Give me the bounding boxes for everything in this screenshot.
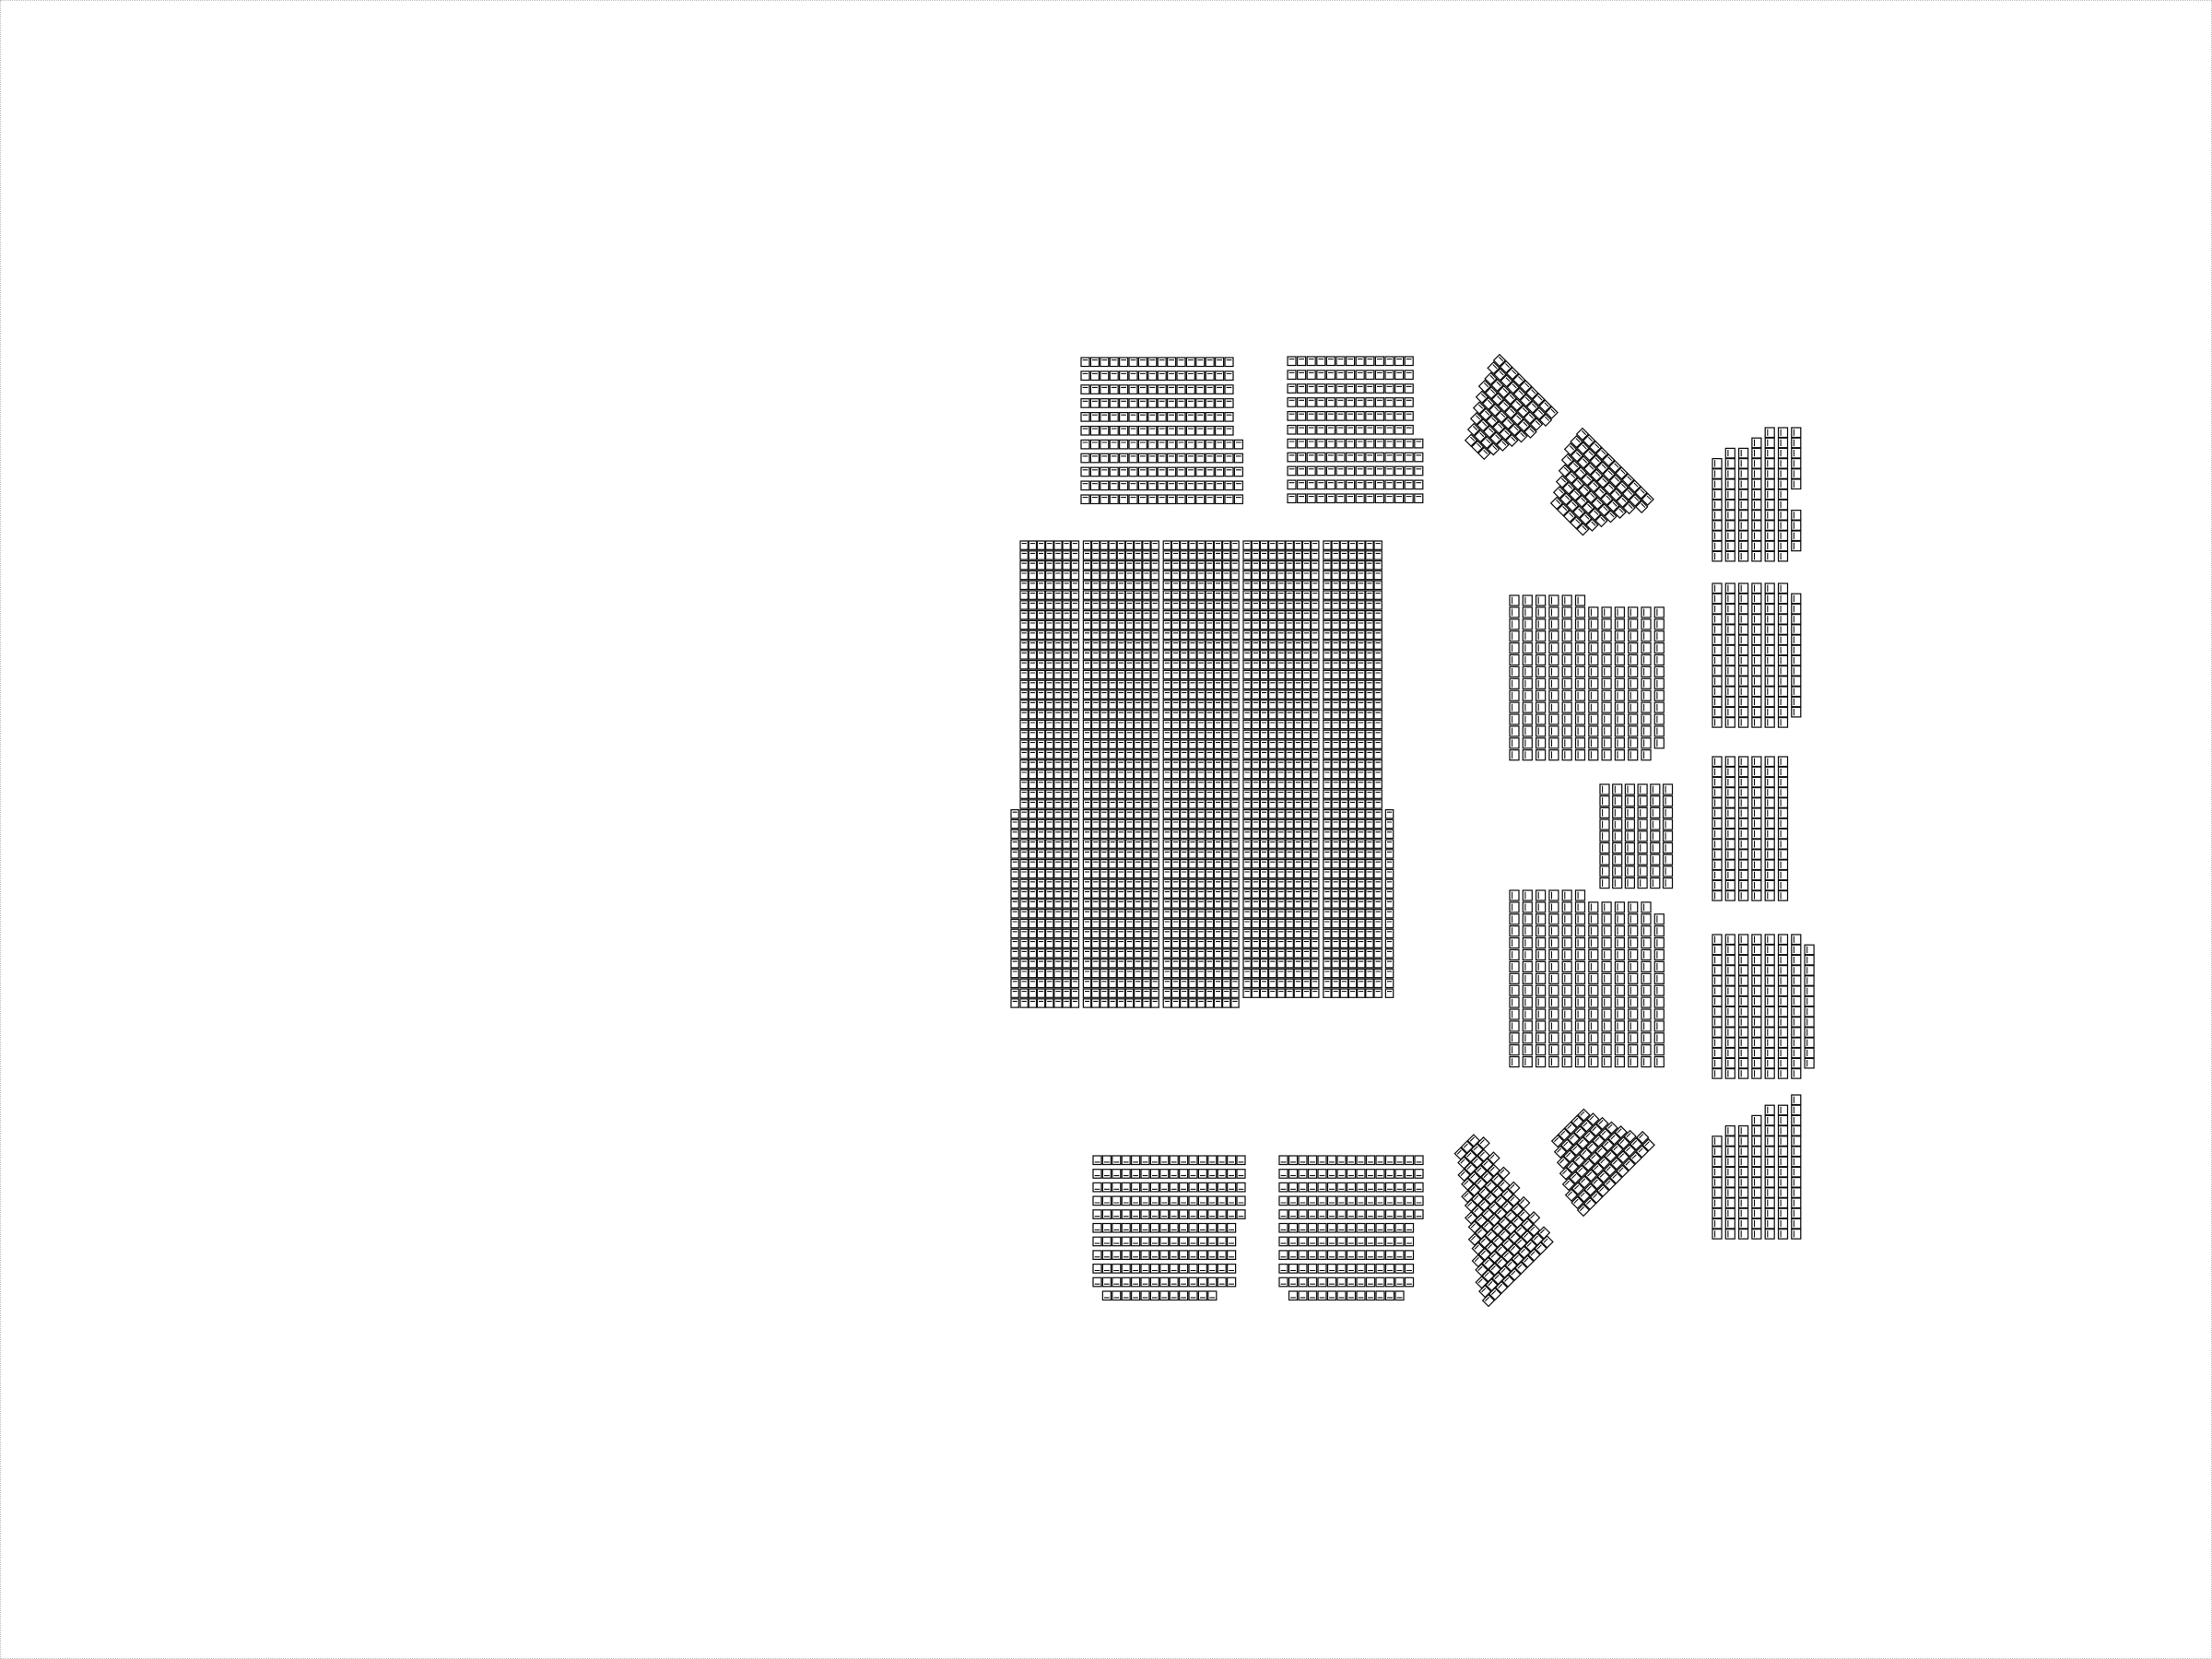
seat[interactable] bbox=[1523, 750, 1532, 760]
seat[interactable] bbox=[1110, 440, 1118, 449]
seat[interactable] bbox=[1712, 500, 1722, 510]
seat[interactable] bbox=[1332, 551, 1339, 559]
seat[interactable] bbox=[1170, 1265, 1178, 1274]
seat[interactable] bbox=[1549, 595, 1559, 606]
seat[interactable] bbox=[1792, 459, 1801, 469]
seat[interactable] bbox=[1549, 1057, 1559, 1067]
seat[interactable] bbox=[1277, 581, 1285, 589]
east-stand-lower-block[interactable] bbox=[1510, 890, 1664, 1067]
seat[interactable] bbox=[1294, 969, 1301, 977]
seat[interactable] bbox=[1046, 680, 1053, 688]
seat[interactable] bbox=[1752, 1028, 1761, 1038]
seat[interactable] bbox=[1206, 690, 1213, 699]
seat[interactable] bbox=[1163, 711, 1171, 719]
seat[interactable] bbox=[1063, 700, 1070, 709]
seat[interactable] bbox=[1358, 879, 1365, 888]
seat[interactable] bbox=[1536, 666, 1546, 677]
seat[interactable] bbox=[1269, 929, 1277, 937]
seat[interactable] bbox=[1302, 850, 1310, 858]
seat[interactable] bbox=[1243, 551, 1251, 559]
seat[interactable] bbox=[1189, 1265, 1197, 1274]
seat[interactable] bbox=[1289, 1156, 1298, 1165]
seat[interactable] bbox=[1576, 702, 1585, 712]
seat[interactable] bbox=[1752, 666, 1761, 677]
seat[interactable] bbox=[1340, 790, 1347, 798]
seat[interactable] bbox=[1092, 551, 1100, 559]
seat[interactable] bbox=[1231, 999, 1239, 1007]
seat[interactable] bbox=[1054, 850, 1062, 858]
seat[interactable] bbox=[1020, 750, 1028, 759]
seat[interactable] bbox=[1223, 939, 1230, 947]
seat[interactable] bbox=[1312, 611, 1319, 619]
seat[interactable] bbox=[1367, 1277, 1375, 1287]
seat[interactable] bbox=[1189, 910, 1196, 918]
seat[interactable] bbox=[1100, 440, 1109, 449]
seat[interactable] bbox=[1712, 986, 1722, 996]
seat[interactable] bbox=[1231, 541, 1239, 549]
seat[interactable] bbox=[1779, 840, 1788, 850]
seat[interactable] bbox=[1223, 850, 1230, 858]
seat[interactable] bbox=[1046, 601, 1053, 609]
seat[interactable] bbox=[1385, 384, 1394, 394]
seat[interactable] bbox=[1286, 760, 1293, 769]
seat[interactable] bbox=[1299, 1224, 1307, 1233]
seat[interactable] bbox=[1279, 1224, 1288, 1233]
seat[interactable] bbox=[1029, 700, 1036, 709]
seat[interactable] bbox=[1277, 939, 1285, 947]
seat[interactable] bbox=[1615, 902, 1624, 912]
seat[interactable] bbox=[1092, 919, 1100, 927]
seat[interactable] bbox=[1629, 973, 1638, 983]
seat[interactable] bbox=[1109, 979, 1116, 987]
seat[interactable] bbox=[1348, 979, 1356, 987]
seat[interactable] bbox=[1739, 541, 1748, 551]
seat[interactable] bbox=[1374, 819, 1382, 828]
seat[interactable] bbox=[1197, 591, 1205, 599]
seat[interactable] bbox=[1324, 750, 1331, 759]
seat[interactable] bbox=[1214, 919, 1221, 927]
seat[interactable] bbox=[1141, 1224, 1149, 1233]
seat[interactable] bbox=[1385, 929, 1393, 937]
seat[interactable] bbox=[1243, 620, 1251, 629]
seat[interactable] bbox=[1615, 973, 1624, 983]
seat[interactable] bbox=[1189, 720, 1196, 728]
seat[interactable] bbox=[1011, 810, 1018, 818]
seat[interactable] bbox=[1792, 1188, 1801, 1198]
seat[interactable] bbox=[1318, 1210, 1326, 1219]
seat[interactable] bbox=[1523, 702, 1532, 712]
seat[interactable] bbox=[1376, 1265, 1384, 1274]
seat[interactable] bbox=[1181, 571, 1188, 579]
south-stand-left-block[interactable] bbox=[1093, 1156, 1245, 1300]
seat[interactable] bbox=[1328, 1224, 1336, 1233]
seat[interactable] bbox=[1214, 581, 1221, 589]
seat[interactable] bbox=[1092, 770, 1100, 778]
seat[interactable] bbox=[1225, 358, 1233, 367]
seat[interactable] bbox=[1029, 611, 1036, 619]
seat[interactable] bbox=[1739, 511, 1748, 521]
seat[interactable] bbox=[1312, 760, 1319, 769]
seat[interactable] bbox=[1117, 999, 1124, 1007]
seat[interactable] bbox=[1252, 790, 1259, 798]
seat[interactable] bbox=[1629, 643, 1638, 653]
seat[interactable] bbox=[1214, 760, 1221, 769]
seat[interactable] bbox=[1117, 661, 1124, 669]
seat[interactable] bbox=[1286, 641, 1293, 649]
seat[interactable] bbox=[1523, 926, 1532, 936]
seat[interactable] bbox=[1664, 796, 1673, 806]
seat[interactable] bbox=[1615, 655, 1624, 665]
seat[interactable] bbox=[1340, 581, 1347, 589]
seat[interactable] bbox=[1712, 718, 1722, 728]
seat[interactable] bbox=[1641, 1057, 1651, 1067]
seat[interactable] bbox=[1536, 902, 1546, 912]
seat[interactable] bbox=[1279, 1251, 1288, 1260]
seat[interactable] bbox=[1765, 767, 1774, 777]
seat[interactable] bbox=[1765, 511, 1774, 521]
seat[interactable] bbox=[1712, 945, 1722, 955]
seat[interactable] bbox=[1366, 641, 1373, 649]
seat[interactable] bbox=[1324, 969, 1331, 977]
seat[interactable] bbox=[1054, 670, 1062, 678]
seat[interactable] bbox=[1117, 919, 1124, 927]
seat[interactable] bbox=[1374, 541, 1382, 549]
seat[interactable] bbox=[1100, 690, 1108, 699]
seat[interactable] bbox=[1071, 740, 1078, 748]
seat[interactable] bbox=[1288, 494, 1296, 503]
seat[interactable] bbox=[1348, 790, 1356, 798]
seat[interactable] bbox=[1150, 1291, 1159, 1300]
seat[interactable] bbox=[1765, 655, 1774, 665]
seat[interactable] bbox=[1083, 630, 1090, 639]
seat[interactable] bbox=[1223, 630, 1230, 639]
seat[interactable] bbox=[1613, 878, 1622, 888]
seat[interactable] bbox=[1171, 989, 1179, 997]
seat[interactable] bbox=[1181, 850, 1188, 858]
seat[interactable] bbox=[1093, 1156, 1101, 1165]
seat[interactable] bbox=[1071, 571, 1078, 579]
seat[interactable] bbox=[1143, 929, 1150, 937]
seat[interactable] bbox=[1765, 955, 1774, 965]
seat[interactable] bbox=[1725, 788, 1735, 798]
seat[interactable] bbox=[1223, 750, 1230, 759]
seat[interactable] bbox=[1712, 935, 1722, 945]
seat[interactable] bbox=[1269, 680, 1277, 688]
seat[interactable] bbox=[1163, 780, 1171, 788]
seat[interactable] bbox=[1206, 959, 1213, 968]
seat[interactable] bbox=[1549, 973, 1559, 983]
seat[interactable] bbox=[1170, 1277, 1178, 1287]
seat[interactable] bbox=[1163, 979, 1171, 987]
seat[interactable] bbox=[1020, 661, 1028, 669]
seat[interactable] bbox=[1243, 780, 1251, 788]
seat[interactable] bbox=[1641, 690, 1651, 700]
seat[interactable] bbox=[1725, 511, 1735, 521]
seat[interactable] bbox=[1237, 1210, 1245, 1219]
seat[interactable] bbox=[1358, 919, 1365, 927]
seat[interactable] bbox=[1366, 730, 1373, 738]
seat[interactable] bbox=[1171, 620, 1179, 629]
seat[interactable] bbox=[1125, 561, 1133, 570]
seat[interactable] bbox=[1129, 495, 1137, 504]
seat[interactable] bbox=[1336, 398, 1345, 407]
seat[interactable] bbox=[1562, 702, 1571, 712]
seat[interactable] bbox=[1206, 481, 1214, 490]
seat[interactable] bbox=[1037, 829, 1044, 838]
seat[interactable] bbox=[1294, 989, 1301, 997]
seat[interactable] bbox=[1336, 439, 1345, 448]
seat[interactable] bbox=[1385, 829, 1393, 838]
seat[interactable] bbox=[1725, 718, 1735, 728]
seat[interactable] bbox=[1208, 1277, 1217, 1287]
seat[interactable] bbox=[1752, 459, 1761, 469]
seat[interactable] bbox=[1385, 879, 1393, 888]
seat[interactable] bbox=[1340, 919, 1347, 927]
seat[interactable] bbox=[1168, 481, 1176, 490]
seat[interactable] bbox=[1231, 551, 1239, 559]
seat[interactable] bbox=[1143, 869, 1150, 877]
seat[interactable] bbox=[1071, 760, 1078, 769]
seat[interactable] bbox=[1135, 780, 1142, 788]
seat[interactable] bbox=[1117, 790, 1124, 798]
seat[interactable] bbox=[1374, 641, 1382, 649]
seat[interactable] bbox=[1223, 900, 1230, 908]
seat[interactable] bbox=[1020, 720, 1028, 728]
seat[interactable] bbox=[1071, 969, 1078, 977]
seat[interactable] bbox=[1269, 750, 1277, 759]
seat[interactable] bbox=[1725, 798, 1735, 808]
seat[interactable] bbox=[1081, 413, 1089, 422]
seat[interactable] bbox=[1615, 738, 1624, 748]
seat[interactable] bbox=[1277, 641, 1285, 649]
seat[interactable] bbox=[1326, 426, 1335, 435]
seat[interactable] bbox=[1063, 661, 1070, 669]
seat[interactable] bbox=[1189, 929, 1196, 937]
seat[interactable] bbox=[1340, 939, 1347, 947]
seat[interactable] bbox=[1510, 619, 1519, 629]
seat[interactable] bbox=[1109, 581, 1116, 589]
seat[interactable] bbox=[1286, 840, 1293, 848]
seat[interactable] bbox=[1286, 651, 1293, 659]
seat[interactable] bbox=[1638, 784, 1647, 794]
seat[interactable] bbox=[1171, 760, 1179, 769]
seat[interactable] bbox=[1189, 1224, 1197, 1233]
seat[interactable] bbox=[1641, 1033, 1651, 1043]
seat[interactable] bbox=[1765, 1188, 1774, 1198]
seat[interactable] bbox=[1340, 711, 1347, 719]
seat[interactable] bbox=[1347, 439, 1355, 448]
seat[interactable] bbox=[1366, 581, 1373, 589]
seat[interactable] bbox=[1779, 1157, 1788, 1167]
seat[interactable] bbox=[1562, 997, 1571, 1007]
seat[interactable] bbox=[1125, 680, 1133, 688]
seat[interactable] bbox=[1135, 680, 1142, 688]
seat[interactable] bbox=[1100, 949, 1108, 958]
seat[interactable] bbox=[1228, 1277, 1236, 1287]
seat[interactable] bbox=[1752, 777, 1761, 787]
seat[interactable] bbox=[1117, 611, 1124, 619]
seat[interactable] bbox=[1110, 495, 1118, 504]
seat[interactable] bbox=[1792, 1218, 1801, 1229]
seat[interactable] bbox=[1302, 601, 1310, 609]
seat[interactable] bbox=[1150, 1224, 1159, 1233]
seat[interactable] bbox=[1664, 843, 1673, 853]
seat[interactable] bbox=[1125, 581, 1133, 589]
seat[interactable] bbox=[1752, 438, 1761, 448]
seat[interactable] bbox=[1576, 631, 1585, 641]
seat[interactable] bbox=[1189, 591, 1196, 599]
seat[interactable] bbox=[1326, 453, 1335, 462]
seat[interactable] bbox=[1269, 541, 1277, 549]
seat[interactable] bbox=[1054, 630, 1062, 639]
seat[interactable] bbox=[1231, 611, 1239, 619]
seat[interactable] bbox=[1318, 1277, 1326, 1287]
seat[interactable] bbox=[1109, 889, 1116, 898]
seat[interactable] bbox=[1294, 840, 1301, 848]
seat[interactable] bbox=[1214, 591, 1221, 599]
seat[interactable] bbox=[1286, 581, 1293, 589]
seat[interactable] bbox=[1765, 479, 1774, 489]
seat[interactable] bbox=[1100, 620, 1108, 629]
seat[interactable] bbox=[1277, 680, 1285, 688]
seat[interactable] bbox=[1318, 1196, 1326, 1206]
seat[interactable] bbox=[1651, 843, 1660, 853]
seat[interactable] bbox=[1576, 643, 1585, 653]
seat[interactable] bbox=[1779, 677, 1788, 687]
seat[interactable] bbox=[1549, 714, 1559, 724]
seat[interactable] bbox=[1170, 1210, 1178, 1219]
seat[interactable] bbox=[1302, 541, 1310, 549]
seat[interactable] bbox=[1615, 997, 1624, 1007]
seat[interactable] bbox=[1510, 890, 1519, 900]
seat[interactable] bbox=[1180, 1237, 1188, 1246]
seat[interactable] bbox=[1029, 760, 1036, 769]
seat[interactable] bbox=[1357, 1291, 1365, 1300]
seat[interactable] bbox=[1206, 611, 1213, 619]
seat[interactable] bbox=[1792, 1028, 1801, 1038]
seat[interactable] bbox=[1298, 371, 1306, 380]
seat[interactable] bbox=[1181, 670, 1188, 678]
seat[interactable] bbox=[1324, 860, 1331, 868]
seat[interactable] bbox=[1092, 700, 1100, 709]
seat[interactable] bbox=[1117, 670, 1124, 678]
seat[interactable] bbox=[1189, 630, 1196, 639]
seat[interactable] bbox=[1218, 1265, 1226, 1274]
seat[interactable] bbox=[1110, 467, 1118, 477]
seat[interactable] bbox=[1071, 730, 1078, 738]
seat[interactable] bbox=[1615, 961, 1624, 971]
seat[interactable] bbox=[1112, 1210, 1121, 1219]
seat[interactable] bbox=[1206, 929, 1213, 937]
seat[interactable] bbox=[1725, 1136, 1735, 1147]
seat[interactable] bbox=[1234, 440, 1242, 449]
seat[interactable] bbox=[1206, 551, 1213, 559]
seat[interactable] bbox=[1366, 601, 1373, 609]
seat[interactable] bbox=[1374, 571, 1382, 579]
seat[interactable] bbox=[1625, 878, 1634, 888]
seat[interactable] bbox=[1600, 807, 1609, 818]
seat[interactable] bbox=[1348, 949, 1356, 958]
seat[interactable] bbox=[1269, 601, 1277, 609]
seat[interactable] bbox=[1654, 690, 1664, 700]
seat[interactable] bbox=[1132, 1291, 1140, 1300]
seat[interactable] bbox=[1340, 780, 1347, 788]
seat[interactable] bbox=[1120, 481, 1128, 490]
seat[interactable] bbox=[1712, 1178, 1722, 1188]
seat[interactable] bbox=[1223, 620, 1230, 629]
seat[interactable] bbox=[1779, 829, 1788, 839]
seat[interactable] bbox=[1348, 869, 1356, 877]
seat[interactable] bbox=[1037, 929, 1044, 937]
seat[interactable] bbox=[1231, 949, 1239, 958]
seat[interactable] bbox=[1376, 1251, 1384, 1260]
seat[interactable] bbox=[1163, 850, 1171, 858]
seat[interactable] bbox=[1562, 595, 1571, 606]
seat[interactable] bbox=[1739, 767, 1748, 777]
seat[interactable] bbox=[1071, 819, 1078, 828]
seat[interactable] bbox=[1020, 919, 1028, 927]
seat[interactable] bbox=[1112, 1277, 1121, 1287]
seat[interactable] bbox=[1125, 641, 1133, 649]
seat[interactable] bbox=[1054, 581, 1062, 589]
seat[interactable] bbox=[1286, 819, 1293, 828]
seat[interactable] bbox=[1243, 630, 1251, 639]
seat[interactable] bbox=[1071, 999, 1078, 1007]
seat[interactable] bbox=[1752, 655, 1761, 665]
seat[interactable] bbox=[1415, 466, 1423, 476]
seat[interactable] bbox=[1366, 740, 1373, 748]
seat[interactable] bbox=[1029, 730, 1036, 738]
seat[interactable] bbox=[1562, 607, 1571, 618]
seat[interactable] bbox=[1340, 770, 1347, 778]
seat[interactable] bbox=[1214, 800, 1221, 808]
seat[interactable] bbox=[1302, 770, 1310, 778]
seat[interactable] bbox=[1589, 750, 1598, 760]
seat[interactable] bbox=[1366, 959, 1373, 968]
seat[interactable] bbox=[1576, 714, 1585, 724]
seat[interactable] bbox=[1171, 670, 1179, 678]
seat[interactable] bbox=[1739, 1208, 1748, 1218]
seat[interactable] bbox=[1294, 740, 1301, 748]
seat[interactable] bbox=[1029, 641, 1036, 649]
seat[interactable] bbox=[1225, 427, 1233, 436]
seat[interactable] bbox=[1576, 902, 1585, 912]
seat[interactable] bbox=[1046, 959, 1053, 968]
seat[interactable] bbox=[1100, 680, 1108, 688]
seat[interactable] bbox=[1135, 661, 1142, 669]
seat[interactable] bbox=[1117, 680, 1124, 688]
seat[interactable] bbox=[1206, 810, 1213, 818]
seat[interactable] bbox=[1158, 467, 1166, 477]
seat[interactable] bbox=[1054, 810, 1062, 818]
seat[interactable] bbox=[1600, 854, 1609, 865]
seat[interactable] bbox=[1214, 690, 1221, 699]
seat[interactable] bbox=[1712, 479, 1722, 489]
seat[interactable] bbox=[1358, 770, 1365, 778]
seat[interactable] bbox=[1286, 740, 1293, 748]
seat[interactable] bbox=[1312, 780, 1319, 788]
seat[interactable] bbox=[1046, 641, 1053, 649]
seat[interactable] bbox=[1243, 959, 1251, 968]
seat[interactable] bbox=[1347, 1182, 1356, 1192]
seat[interactable] bbox=[1523, 914, 1532, 924]
main-floor-group-4[interactable] bbox=[1243, 541, 1319, 997]
seat[interactable] bbox=[1252, 601, 1259, 609]
seat[interactable] bbox=[1374, 690, 1382, 699]
seat[interactable] bbox=[1092, 999, 1100, 1007]
seat[interactable] bbox=[1037, 690, 1044, 699]
seat[interactable] bbox=[1332, 711, 1339, 719]
